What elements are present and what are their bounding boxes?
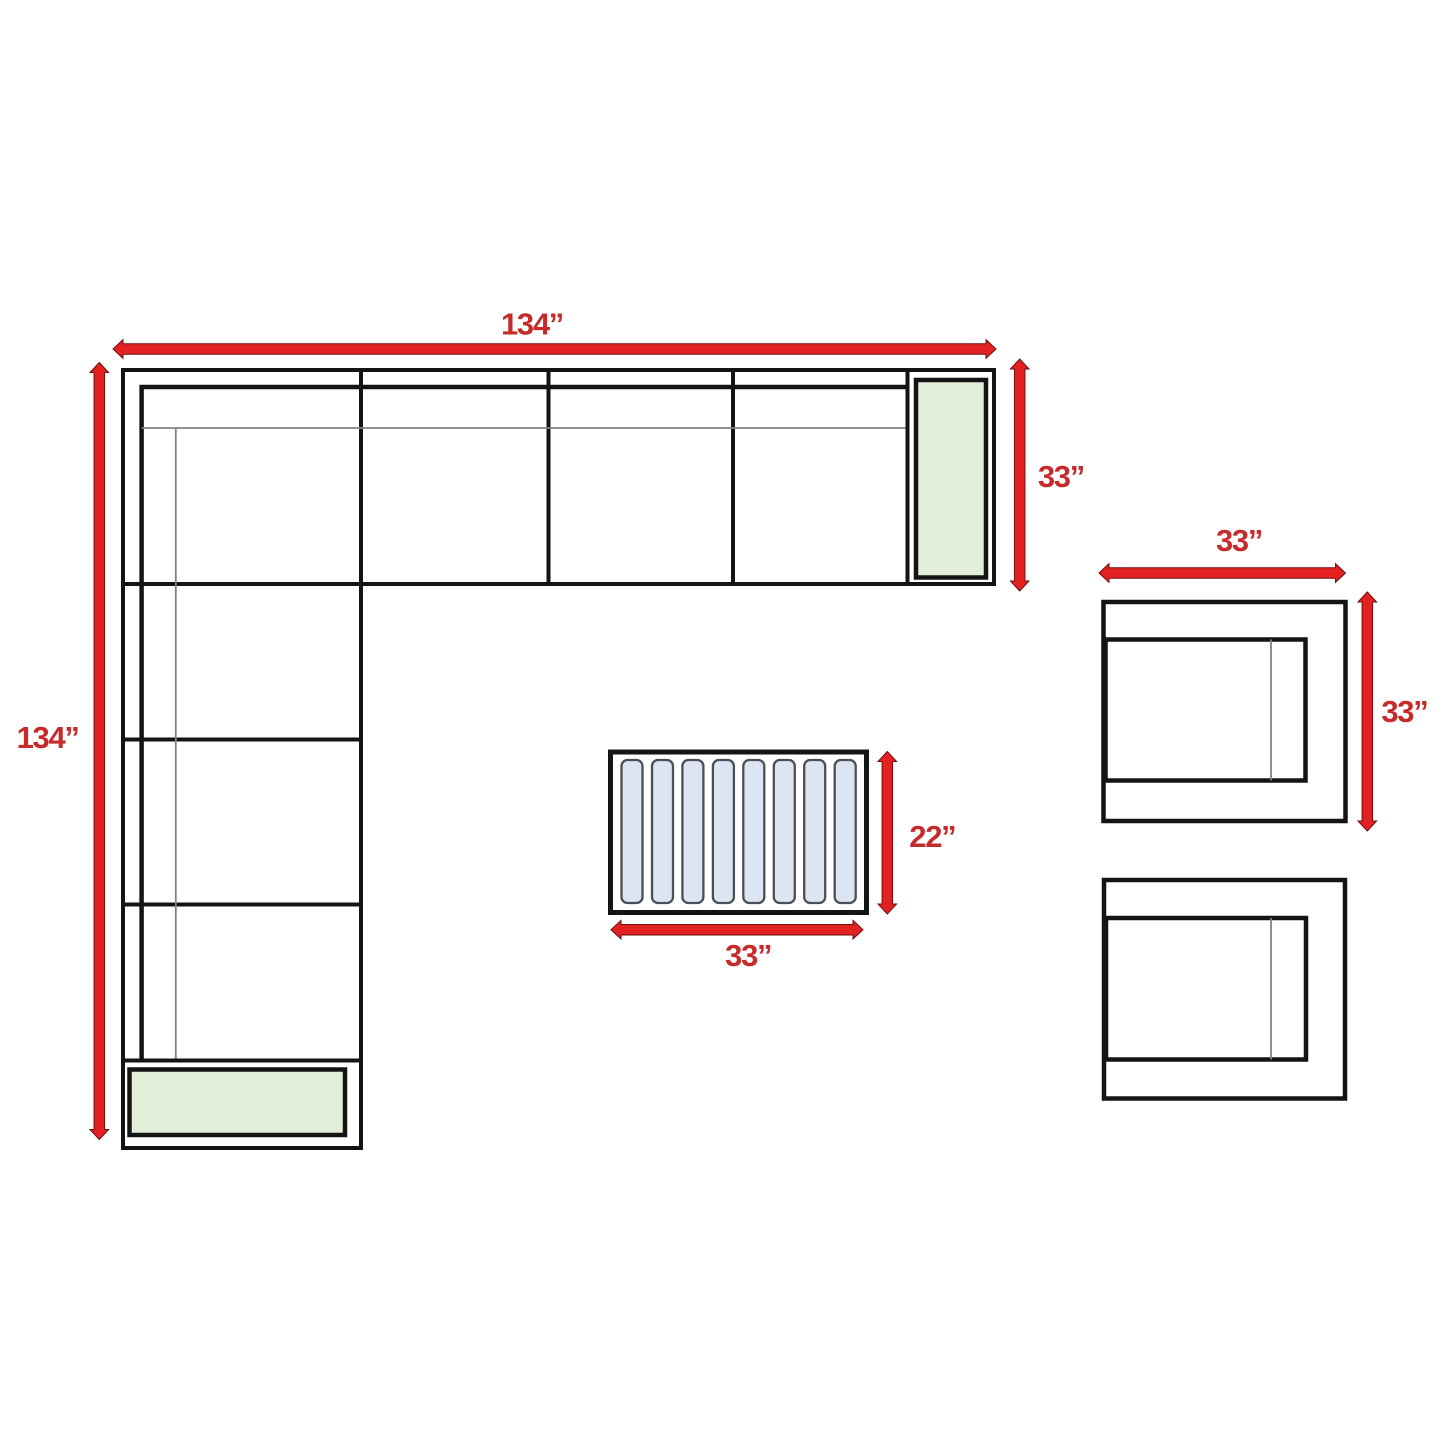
svg-text:22”: 22” (909, 819, 955, 854)
svg-text:33”: 33” (1038, 459, 1084, 494)
svg-text:33”: 33” (1216, 523, 1262, 558)
svg-text:33”: 33” (725, 938, 771, 973)
svg-text:134”: 134” (17, 720, 79, 755)
svg-text:33”: 33” (1381, 694, 1427, 729)
svg-text:134”: 134” (501, 307, 563, 342)
